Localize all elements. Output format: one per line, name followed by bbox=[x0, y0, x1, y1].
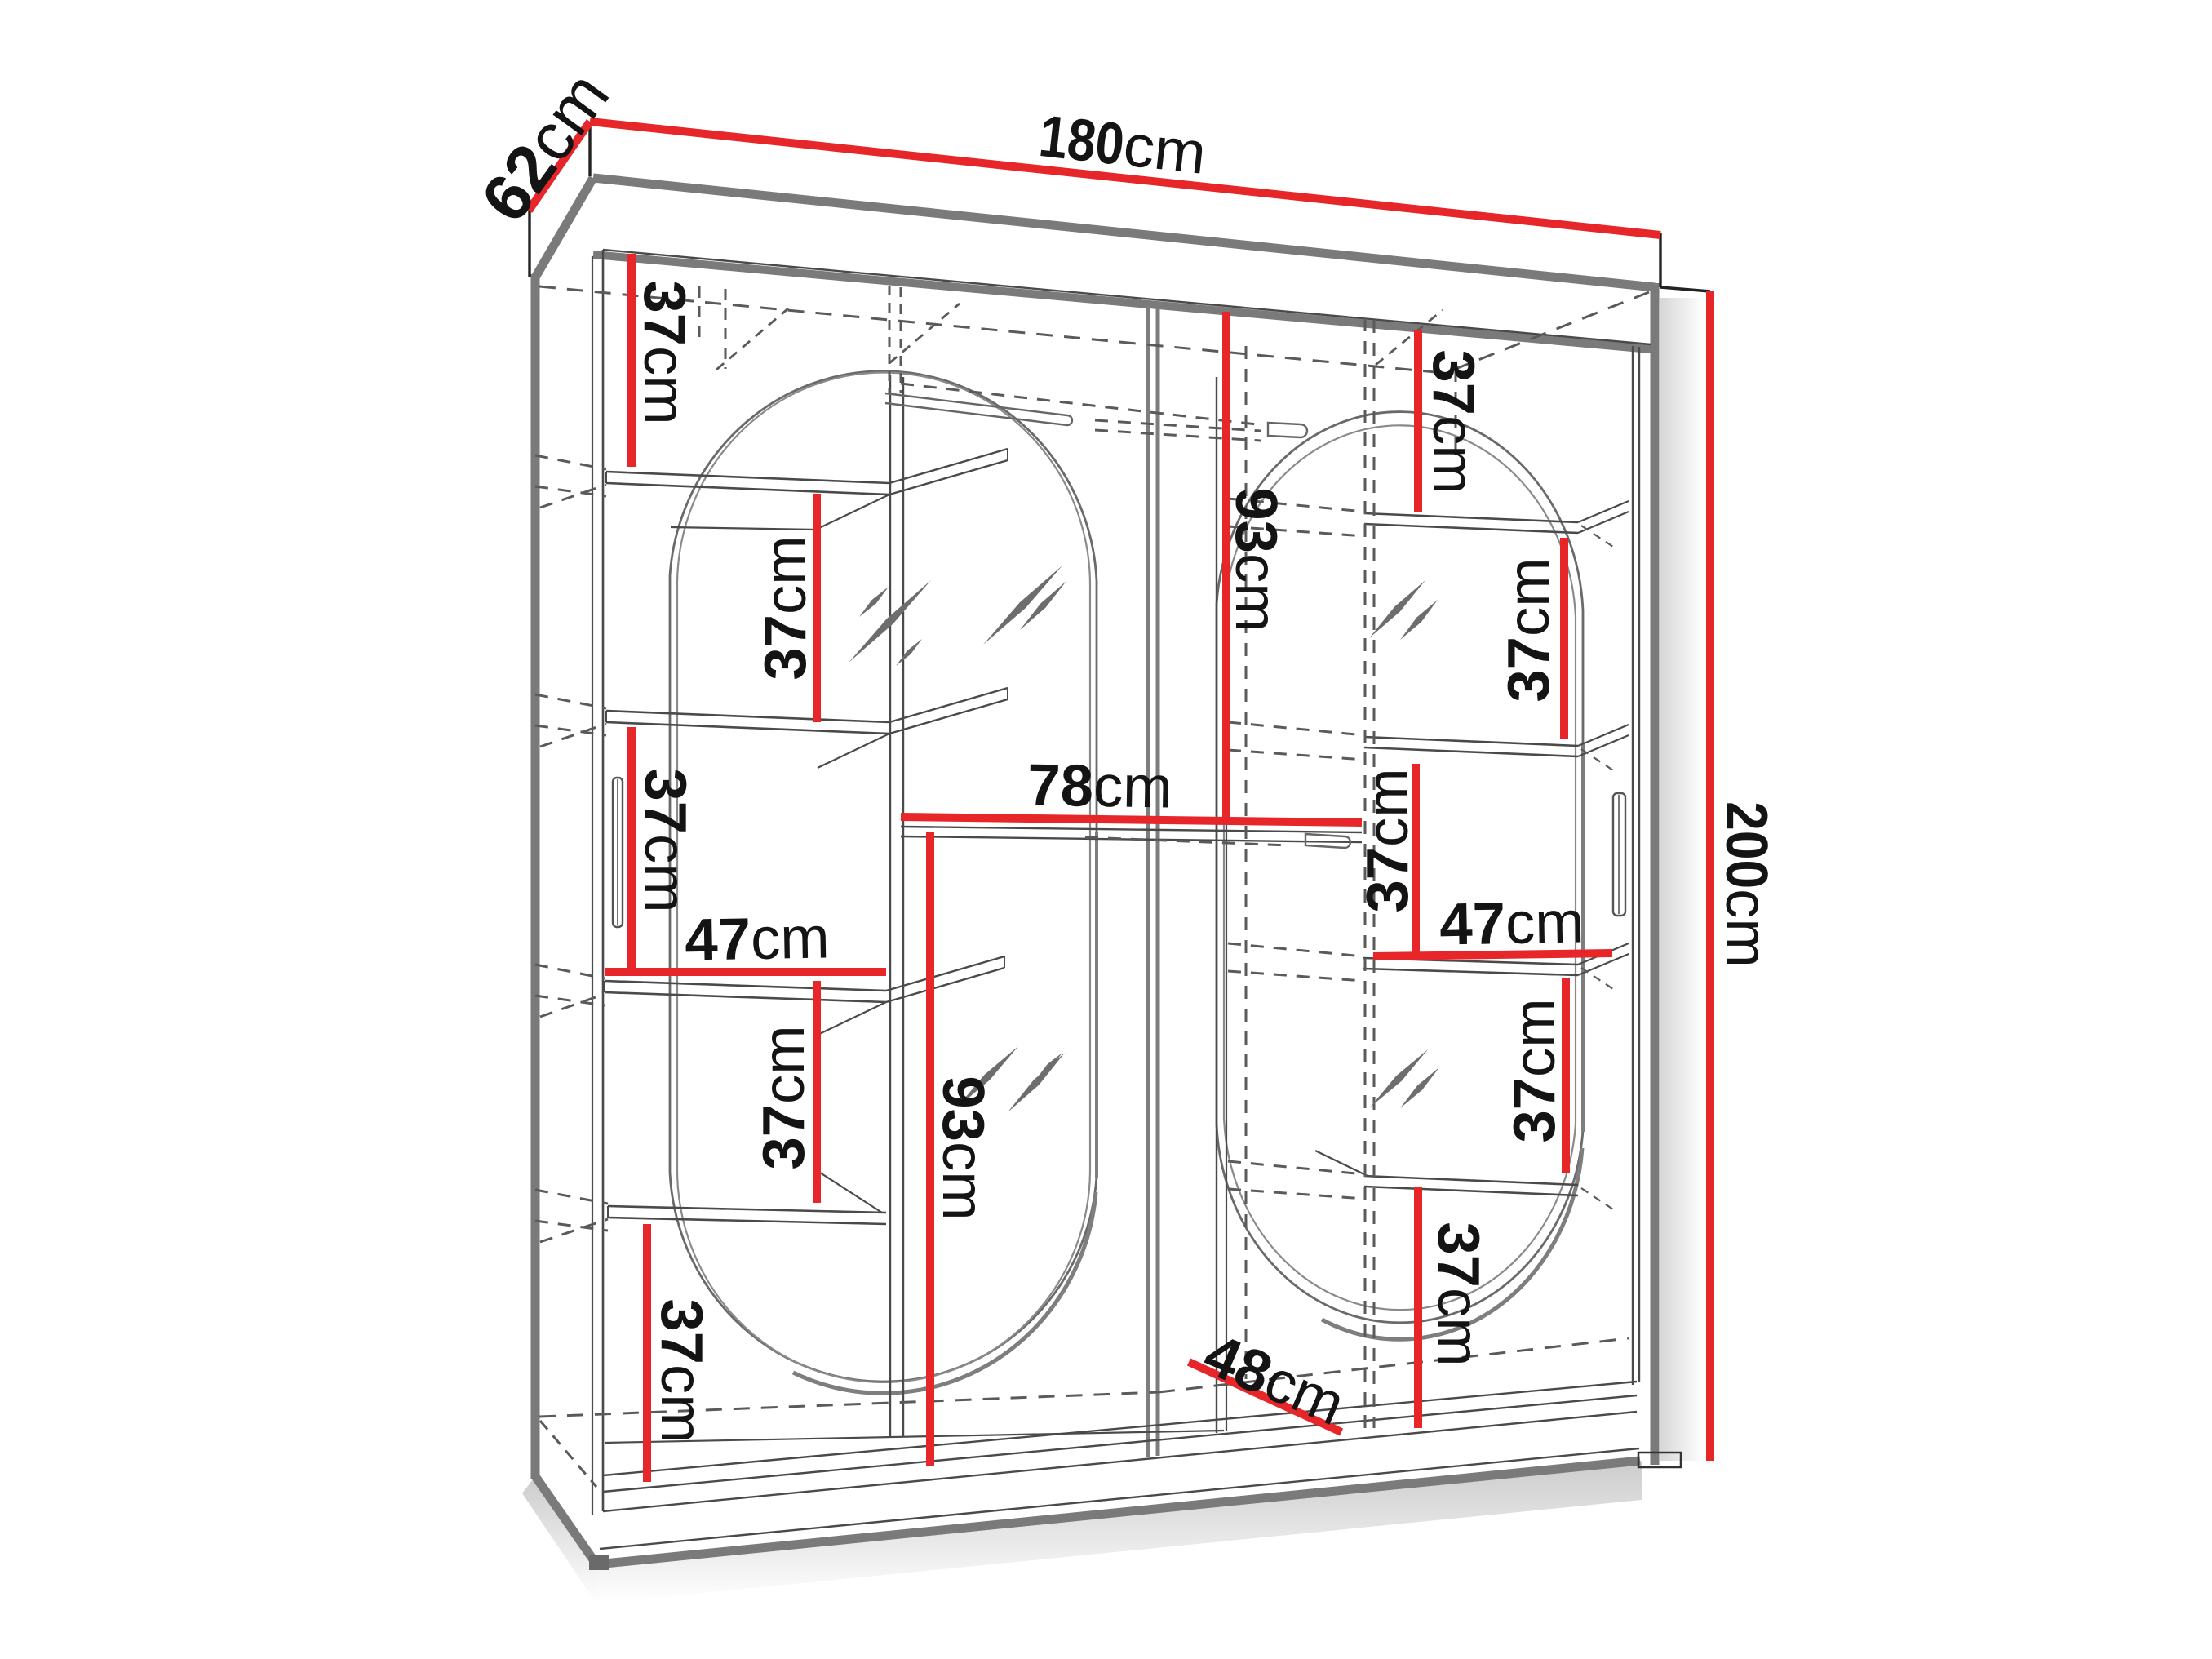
svg-text:37cm: 37cm bbox=[633, 768, 699, 912]
svg-text:37cm: 37cm bbox=[1421, 349, 1487, 494]
svg-text:37cm: 37cm bbox=[632, 280, 698, 424]
svg-text:93cm: 93cm bbox=[1224, 487, 1290, 632]
svg-text:37cm: 37cm bbox=[1354, 768, 1421, 912]
svg-text:47cm: 47cm bbox=[1439, 889, 1585, 957]
svg-text:37cm: 37cm bbox=[752, 535, 818, 680]
svg-text:37cm: 37cm bbox=[1426, 1222, 1492, 1366]
svg-text:37cm: 37cm bbox=[751, 1025, 817, 1169]
svg-text:37cm: 37cm bbox=[1501, 998, 1567, 1142]
svg-text:37cm: 37cm bbox=[649, 1298, 716, 1443]
svg-text:93cm: 93cm bbox=[931, 1076, 997, 1220]
svg-text:200cm: 200cm bbox=[1714, 801, 1780, 968]
svg-text:78cm: 78cm bbox=[1027, 752, 1173, 820]
svg-text:37cm: 37cm bbox=[1496, 557, 1562, 702]
svg-text:47cm: 47cm bbox=[685, 904, 831, 973]
